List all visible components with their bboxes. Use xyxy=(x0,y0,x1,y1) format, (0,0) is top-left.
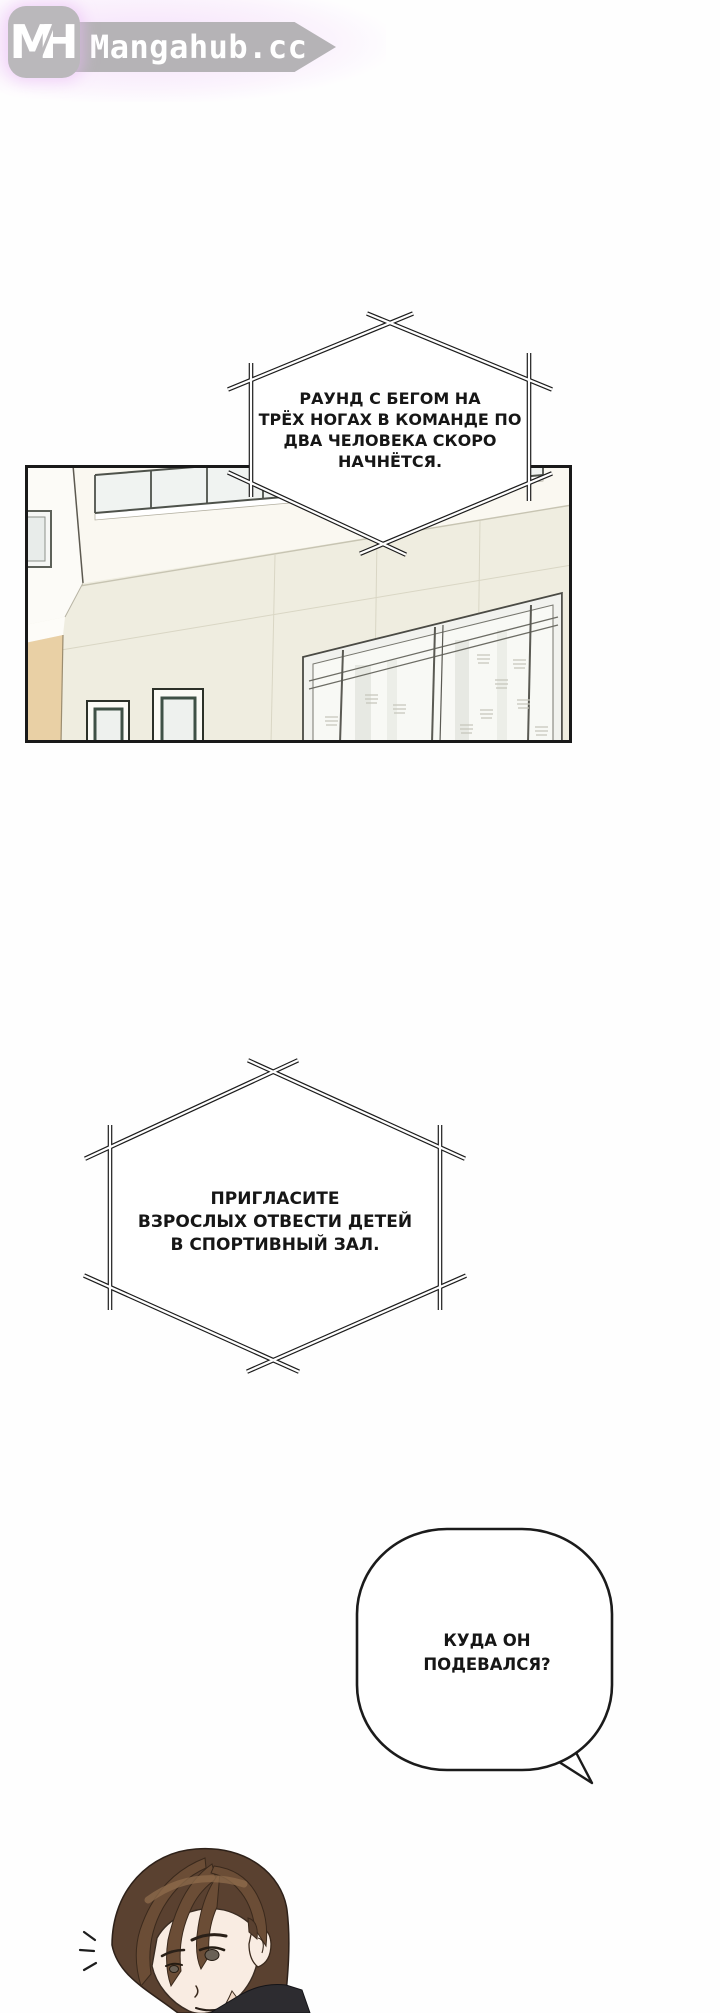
bubble-text-line: ПРИГЛАСИТЕ xyxy=(105,1188,445,1211)
speech-text: КУДА ОН ПОДЕВАЛСЯ? xyxy=(367,1629,607,1677)
logo-mh-monogram: M H xyxy=(8,6,80,78)
logo-banner: Mangahub.cc xyxy=(40,22,336,72)
manga-page[interactable]: Mangahub.cc M H xyxy=(0,0,720,2013)
character-young-man xyxy=(0,1780,420,2013)
logo-site-name: Mangahub.cc xyxy=(40,22,336,72)
bubble-text-line: ПОДЕВАЛСЯ? xyxy=(367,1653,607,1677)
bubble-text-line: КУДА ОН xyxy=(367,1629,607,1653)
green-window-a xyxy=(87,701,129,743)
emphasis-marks xyxy=(80,1932,96,1970)
bubble-text-line: РАУНД С БЕГОМ НА xyxy=(230,388,550,409)
bubble-text-line: НАЧНЁТСЯ. xyxy=(230,451,550,472)
bubble-text-line: ВЗРОСЛЫХ ОТВЕСТИ ДЕТЕЙ xyxy=(105,1211,445,1234)
announcement-text-2: ПРИГЛАСИТЕ ВЗРОСЛЫХ ОТВЕСТИ ДЕТЕЙ В СПОР… xyxy=(105,1188,445,1257)
green-window-b xyxy=(153,689,203,743)
tan-stripe xyxy=(25,617,65,743)
bubble-text-line: В СПОРТИВНЫЙ ЗАЛ. xyxy=(105,1234,445,1257)
bubble-text-line: ДВА ЧЕЛОВЕКА СКОРО xyxy=(230,430,550,451)
bubble-text-line: ТРЁХ НОГАХ В КОМАНДЕ ПО xyxy=(230,409,550,430)
announcement-text-1: РАУНД С БЕГОМ НА ТРЁХ НОГАХ В КОМАНДЕ ПО… xyxy=(230,388,550,472)
